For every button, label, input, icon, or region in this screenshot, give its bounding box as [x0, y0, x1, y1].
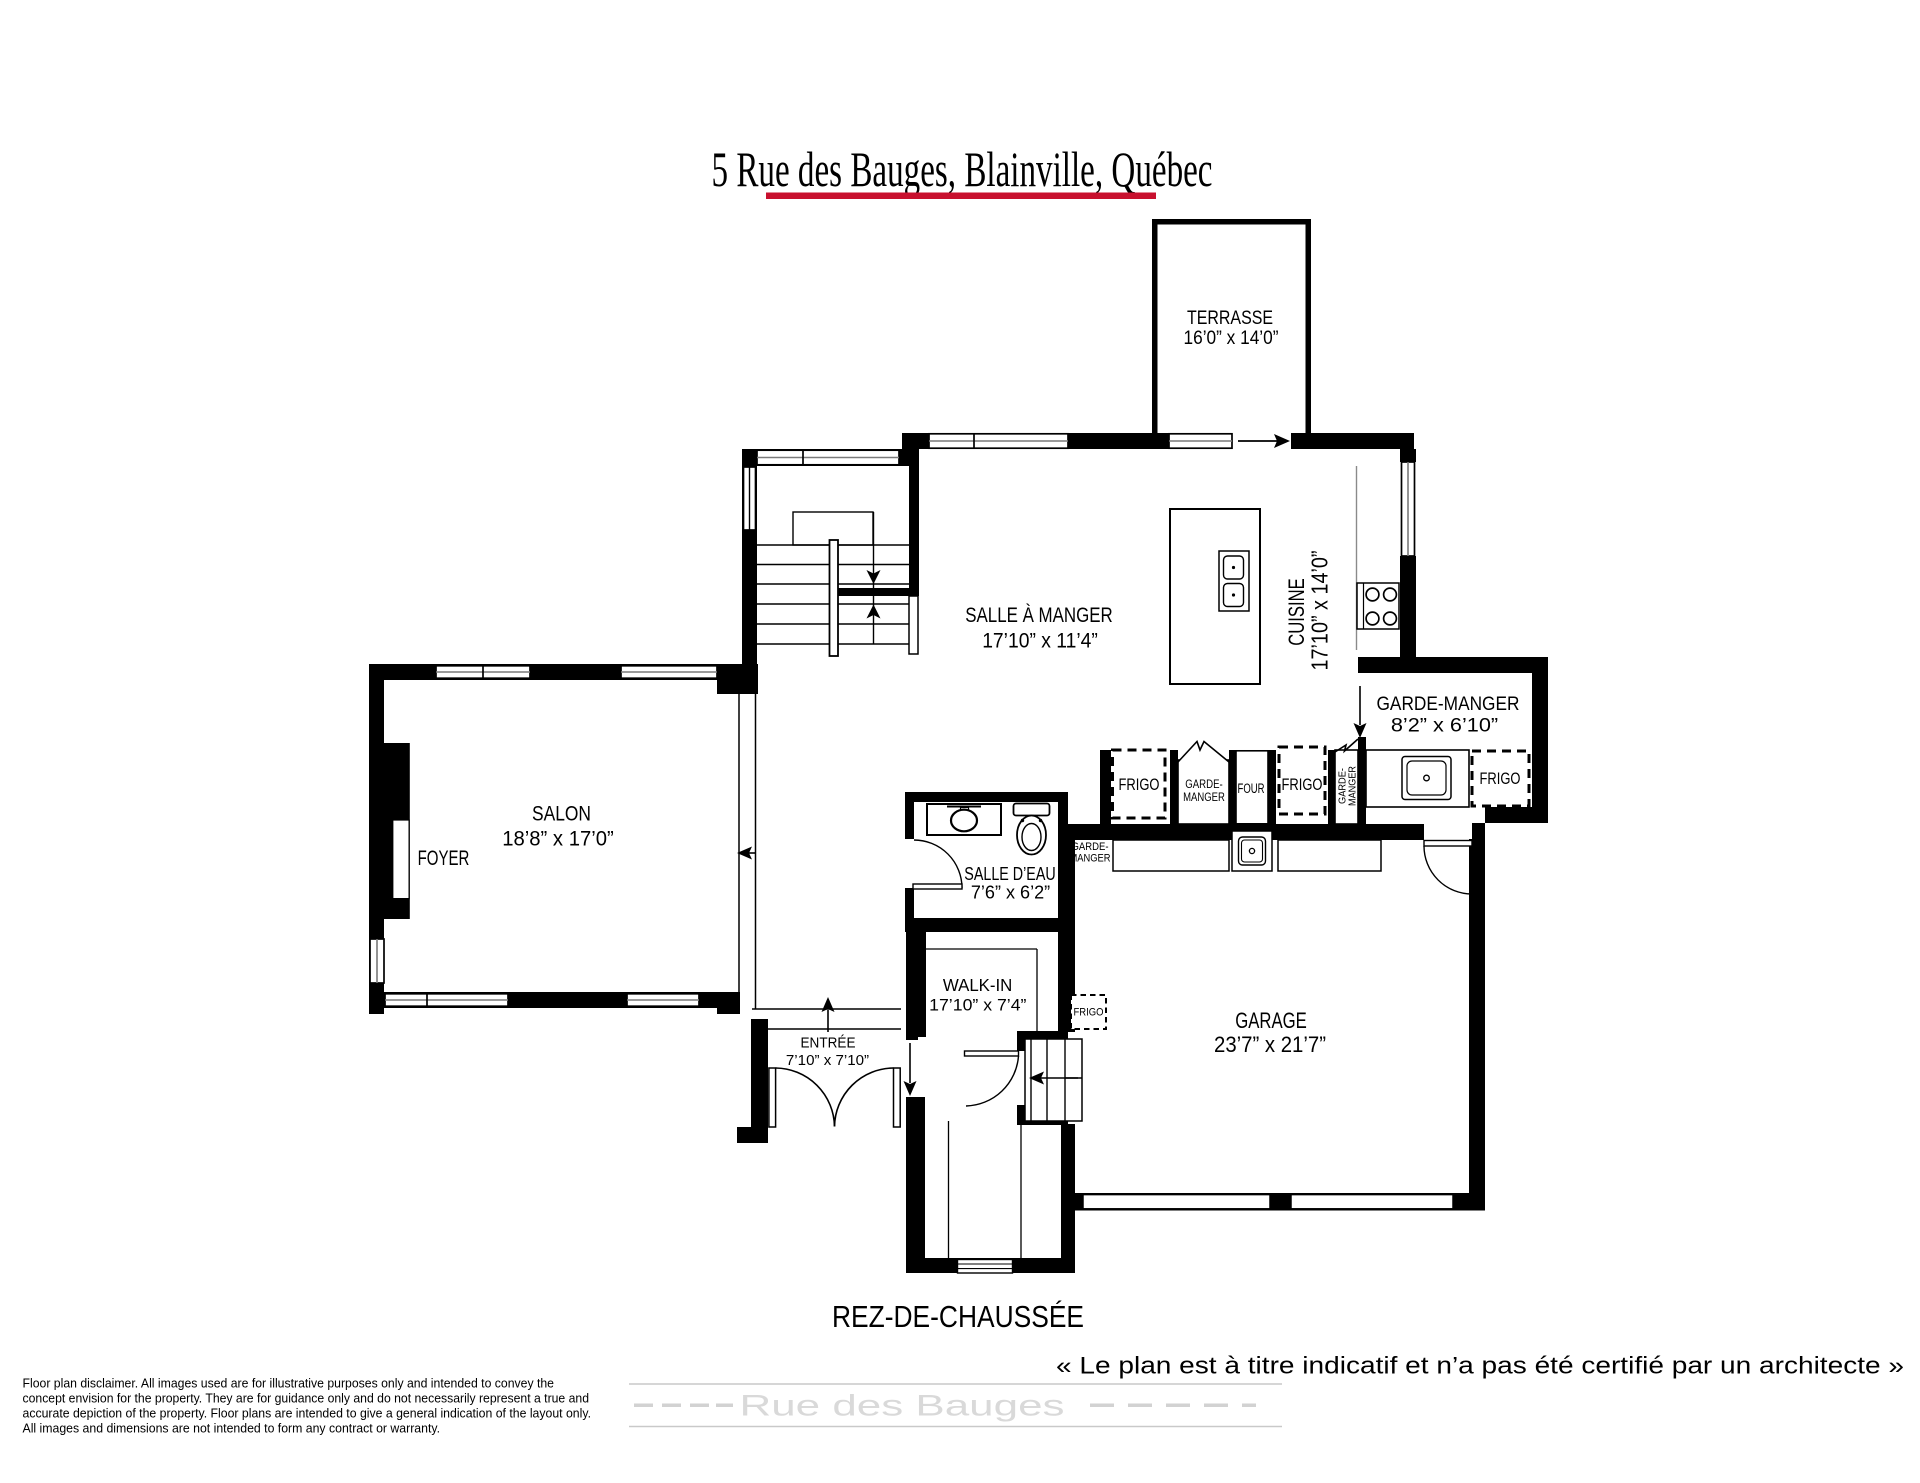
svg-text:7’10” x 7’10”: 7’10” x 7’10” — [786, 1053, 869, 1069]
svg-text:accurate depiction of the prop: accurate depiction of the property. Floo… — [23, 1406, 592, 1421]
svg-text:SALLE À MANGER: SALLE À MANGER — [965, 604, 1113, 627]
svg-text:SALON: SALON — [532, 803, 591, 826]
svg-text:ENTRÉE: ENTRÉE — [801, 1034, 856, 1051]
svg-text:17’10” x 14’0”: 17’10” x 14’0” — [1307, 551, 1333, 671]
svg-text:All images and dimensions are: All images and dimensions are not intend… — [23, 1421, 441, 1436]
svg-text:GARDE-: GARDE- — [1185, 779, 1223, 791]
svg-text:7’6” x 6’2”: 7’6” x 6’2” — [971, 882, 1050, 903]
svg-text:8’2” x 6’10”: 8’2” x 6’10” — [1391, 715, 1498, 737]
svg-text:GARDE-: GARDE- — [1072, 841, 1109, 853]
svg-text:WALK-IN: WALK-IN — [943, 975, 1013, 995]
svg-text:FRIGO: FRIGO — [1480, 769, 1521, 788]
svg-text:GARAGE: GARAGE — [1235, 1008, 1307, 1033]
svg-text:16’0” x 14’0”: 16’0” x 14’0” — [1184, 328, 1279, 349]
svg-text:MANGER: MANGER — [1347, 766, 1359, 806]
svg-text:MANGER: MANGER — [1070, 853, 1111, 865]
svg-text:FRIGO: FRIGO — [1282, 775, 1323, 794]
svg-text:5 Rue des Bauges, Blainville,: 5 Rue des Bauges, Blainville, Québec — [712, 141, 1213, 197]
svg-text:Floor plan disclaimer. All ima: Floor plan disclaimer. All images used a… — [23, 1375, 555, 1390]
svg-text:FOYER: FOYER — [418, 847, 470, 870]
svg-text:REZ-DE-CHAUSSÉE: REZ-DE-CHAUSSÉE — [832, 1299, 1084, 1334]
svg-text:MANGER: MANGER — [1183, 792, 1225, 804]
svg-text:18’8” x 17’0”: 18’8” x 17’0” — [502, 828, 614, 851]
svg-text:TERRASSE: TERRASSE — [1187, 308, 1273, 329]
svg-text:concept envision for the prope: concept envision for the property. They … — [23, 1391, 590, 1406]
svg-text:FRIGO: FRIGO — [1074, 1007, 1104, 1019]
svg-text:17’10” x 11’4”: 17’10” x 11’4” — [982, 630, 1098, 653]
svg-text:FRIGO: FRIGO — [1119, 775, 1160, 794]
svg-text:Rue des Bauges: Rue des Bauges — [740, 1390, 1065, 1423]
svg-text:17’10” x 7’4”: 17’10” x 7’4” — [929, 995, 1027, 1014]
svg-text:CUISINE: CUISINE — [1284, 578, 1309, 646]
svg-text:FOUR: FOUR — [1238, 781, 1265, 796]
svg-text:GARDE-MANGER: GARDE-MANGER — [1377, 693, 1520, 715]
svg-text:« Le plan est à titre indicati: « Le plan est à titre indicatif et n’a p… — [1056, 1352, 1904, 1379]
svg-text:23’7” x 21’7”: 23’7” x 21’7” — [1214, 1032, 1326, 1057]
